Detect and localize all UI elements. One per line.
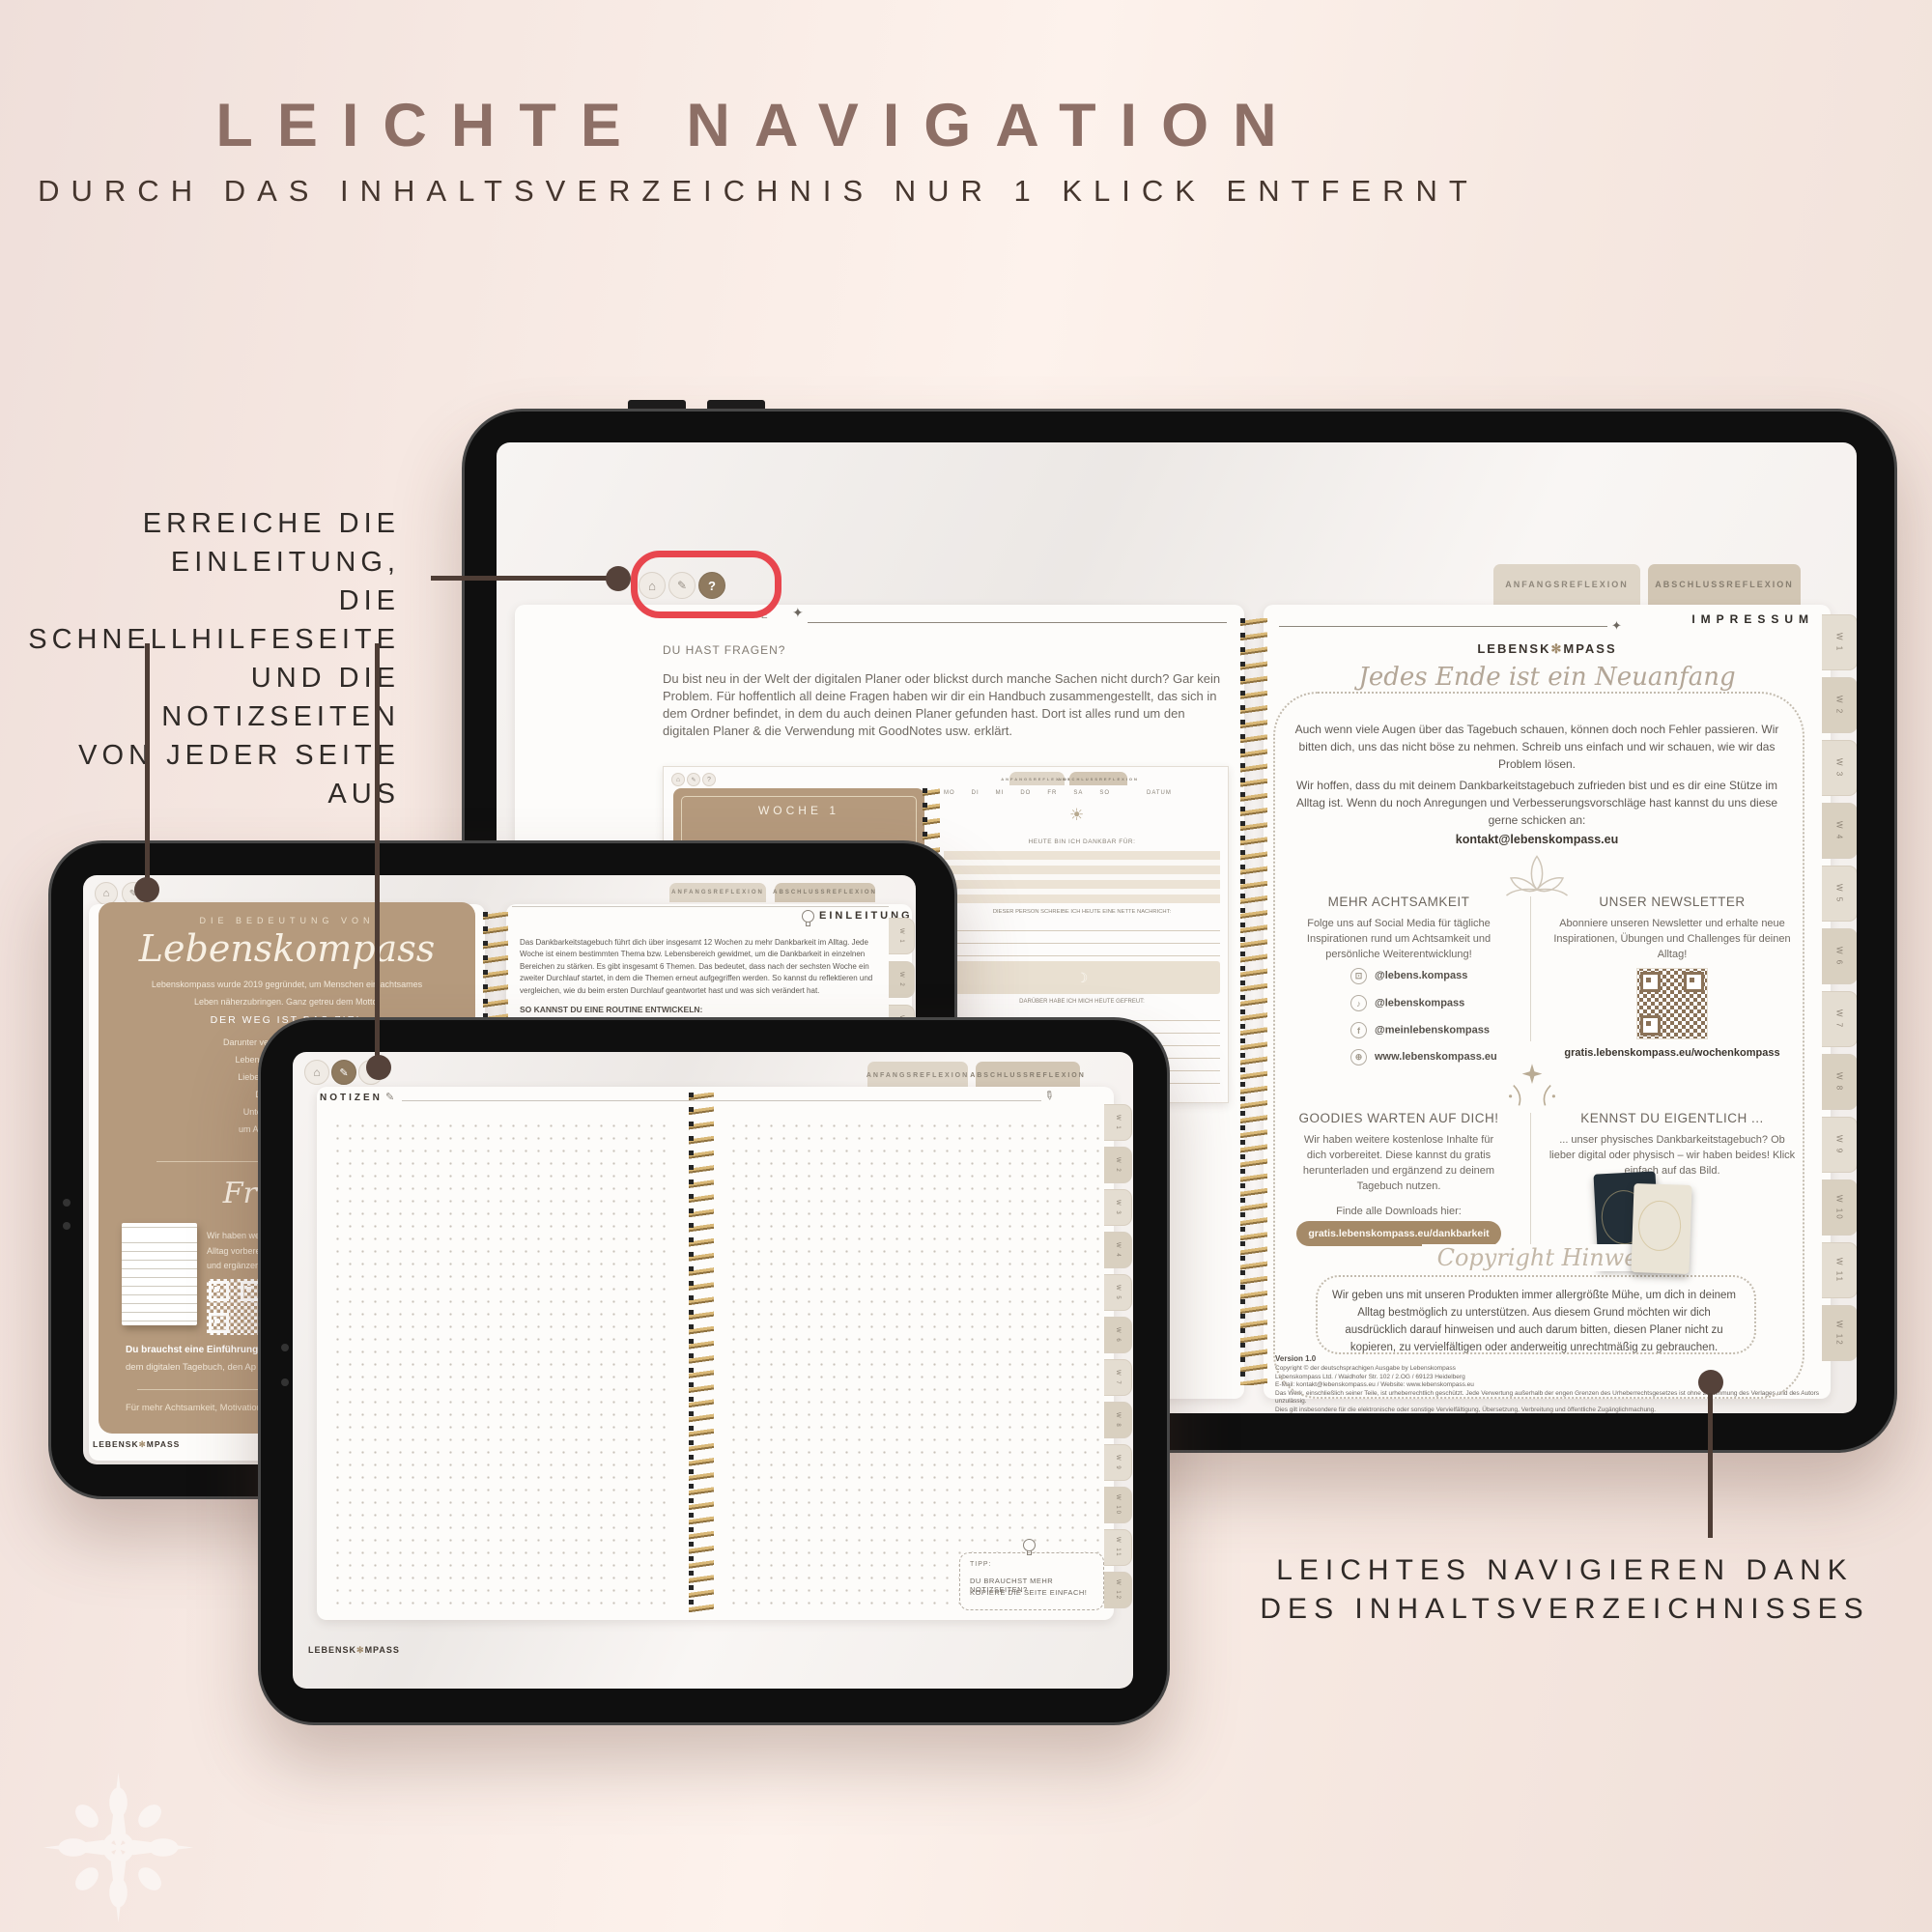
lebenskompass-logo: LEBENSK✻MPASS xyxy=(308,1645,400,1656)
tab-anfangsreflexion[interactable]: ANFANGSREFLEXION xyxy=(1493,564,1640,605)
freebies-qr-code[interactable] xyxy=(207,1279,263,1335)
week-tab-w2[interactable]: W 2 xyxy=(889,961,915,998)
pen-icon[interactable]: ✎ xyxy=(668,572,696,599)
marketing-graphic: LEICHTE NAVIGATION DURCH DAS INHALTSVERZ… xyxy=(0,0,1932,1932)
newsletter-heading: UNSER NEWSLETTER xyxy=(1553,895,1791,909)
week-tab-w3[interactable]: W 3 xyxy=(1822,740,1857,796)
social-link-website[interactable]: ⊕www.lebenskompass.eu xyxy=(1350,1049,1497,1065)
annotation-line: DES INHALTSVERZEICHNISSES xyxy=(1179,1590,1932,1629)
gratitude-rows[interactable] xyxy=(944,851,1220,903)
script-title: Lebenskompass xyxy=(99,927,475,970)
home-glyph: ⌂ xyxy=(648,579,656,593)
pen-icon: ✎ xyxy=(385,1091,394,1103)
tab-anfangsreflexion[interactable]: ANFANGSREFLEXION xyxy=(867,1062,968,1089)
copyright-script-wrap: Copyright Hinweis xyxy=(1264,1244,1831,1271)
freebies-lines: Wir haben we Alltag vorbere und ergänzen xyxy=(207,1229,261,1274)
tab-abschlussreflexion[interactable]: ABSCHLUSSREFLEXION xyxy=(1648,564,1801,605)
downloads-link-pill[interactable]: gratis.lebenskompass.eu/dankbarkeit xyxy=(1296,1221,1501,1246)
week-tab-w9[interactable]: W 9 xyxy=(1822,1117,1857,1173)
page-title: LEICHTE NAVIGATION xyxy=(0,91,1517,160)
pen-icon: ✎ xyxy=(687,773,700,786)
week-tab-w7[interactable]: W 7 xyxy=(1104,1359,1132,1396)
annotation-line: ERREICHE DIE EINLEITUNG, xyxy=(17,504,400,582)
week-tab-w1[interactable]: W 1 xyxy=(1104,1104,1132,1141)
instagram-icon: ⊡ xyxy=(1350,968,1367,984)
card-line: Leben näherzubringen. Ganz getreu dem Mo… xyxy=(99,997,475,1007)
social-link-facebook[interactable]: f@meinlebenskompass xyxy=(1350,1022,1497,1038)
moon-box: ☽ xyxy=(944,961,1220,994)
week-tab-w6[interactable]: W 6 xyxy=(1822,928,1857,984)
tab-abschlussreflexion[interactable]: ABSCHLUSSREFLEXION xyxy=(976,1062,1080,1089)
help-icon: ? xyxy=(702,773,716,786)
lebenskompass-logo: LEBENSK✻MPASS xyxy=(1264,641,1831,657)
sparkle-icon: ✦ xyxy=(1611,618,1622,634)
intro-bold-line: Du brauchst eine Einführung? xyxy=(126,1345,264,1355)
title-light: HILFE xyxy=(728,611,770,621)
tipp-box: TIPP: DU BRAUCHST MEHR NOTIZSEITEN? KOPI… xyxy=(959,1552,1104,1610)
week-tab-w3[interactable]: W 3 xyxy=(1104,1189,1132,1226)
bulb-icon xyxy=(802,910,814,927)
pen-icon[interactable]: ✎ xyxy=(331,1060,356,1085)
impressum-script-title: Jedes Ende ist ein Neuanfang xyxy=(1343,663,1750,692)
moon-icon: ☽ xyxy=(1076,970,1089,986)
week-tab-w7[interactable]: W 7 xyxy=(1822,991,1857,1047)
physical-text: ... unser physisches Dankbarkeitstagebuc… xyxy=(1548,1132,1797,1179)
sparkle-icon: ✦ xyxy=(792,605,804,621)
goodies-text: Wir haben weitere kostenlose Inhalte für… xyxy=(1296,1132,1501,1194)
week-tab-w2[interactable]: W 2 xyxy=(1822,677,1857,733)
lebenskompass-logo: LEBENSK✻MPASS xyxy=(93,1439,180,1450)
gefreut-label: DARÜBER HABE ICH MICH HEUTE GEFREUT: xyxy=(944,999,1220,1005)
newsletter-qr-code[interactable] xyxy=(1636,968,1708,1039)
annotation-line: VON JEDER SEITE AUS xyxy=(17,736,400,813)
tipp-label: TIPP: xyxy=(970,1561,992,1568)
week-tab-w6[interactable]: W 6 xyxy=(1104,1317,1132,1353)
spiral-binding xyxy=(689,1093,714,1614)
sun-icon: ☀ xyxy=(1069,806,1084,825)
week-tab-w12[interactable]: W 12 xyxy=(1822,1305,1857,1361)
week-tab-w8[interactable]: W 8 xyxy=(1104,1402,1132,1438)
card-line: Lebenskompass wurde 2019 gegründet, um M… xyxy=(99,980,475,989)
dotted-notes-area-left[interactable] xyxy=(331,1120,675,1605)
pen-glyph: ✎ xyxy=(677,579,687,592)
home-icon: ⌂ xyxy=(671,773,685,786)
logo-flower-icon: ✻ xyxy=(139,1439,147,1449)
tab-anfangsreflexion[interactable]: ANFANGSREFLEXION xyxy=(669,883,766,902)
week-tab-w12[interactable]: W 12 xyxy=(1104,1572,1132,1608)
person-label: DIESER PERSON SCHREIBE ICH HEUTE EINE NE… xyxy=(944,909,1220,915)
week-tab-w5[interactable]: W 5 xyxy=(1822,866,1857,922)
sparkle-burst-icon xyxy=(1501,1061,1563,1107)
help-icon[interactable]: ? xyxy=(358,1060,384,1085)
annotation-bottom-right: LEICHTES NAVIGIEREN DANK DES INHALTSVERZ… xyxy=(1179,1551,1932,1629)
week-tab-w10[interactable]: W 10 xyxy=(1104,1487,1132,1523)
logo-flower-icon: ✻ xyxy=(1550,641,1563,656)
physical-heading: KENNST DU EIGENTLICH ... xyxy=(1553,1111,1791,1125)
notizen-heading: NOTIZEN xyxy=(320,1093,383,1103)
lotus-icon xyxy=(1493,852,1580,898)
week-tab-w10[interactable]: W 10 xyxy=(1822,1179,1857,1236)
week-tab-w1[interactable]: W 1 xyxy=(1822,614,1857,670)
dotted-notes-area-right[interactable] xyxy=(727,1120,1104,1605)
intro-line2: dem digitalen Tagebuch, den Ap xyxy=(126,1362,256,1373)
home-icon[interactable]: ⌂ xyxy=(304,1060,329,1085)
week-tab-w8[interactable]: W 8 xyxy=(1822,1054,1857,1110)
freebie-paper-image xyxy=(122,1223,197,1325)
tiktok-icon: ♪ xyxy=(1350,995,1367,1011)
week-tab-w11[interactable]: W 11 xyxy=(1104,1529,1132,1566)
achtsamkeit-text: Folge uns auf Social Media für tägliche … xyxy=(1293,916,1505,962)
camera-dot xyxy=(281,1344,289,1351)
week-tab-w1[interactable]: W 1 xyxy=(889,918,915,954)
globe-icon: ⊕ xyxy=(1350,1049,1367,1065)
facebook-icon: f xyxy=(1350,1022,1367,1038)
annotation-line: DIE SCHNELLHILFESEITE xyxy=(17,582,400,659)
tablet-center-screen: ⌂ ✎ ? ANFANGSREFLEXION ABSCHLUSSREFLEXIO… xyxy=(293,1052,1133,1689)
camera-dot xyxy=(63,1199,71,1207)
contact-email[interactable]: kontakt@lebenskompass.eu xyxy=(1293,833,1781,846)
impressum-heading: IMPRESSUM xyxy=(1631,612,1814,626)
einleitung-paragraph: Das Dankbarkeitstagebuch führt dich über… xyxy=(520,937,887,997)
newsletter-text: Abonniere unseren Newsletter und erhalte… xyxy=(1549,916,1795,962)
camera-dot xyxy=(281,1378,289,1386)
copyright-text: Wir geben uns mit unseren Produkten imme… xyxy=(1329,1287,1739,1356)
help-glyph: ? xyxy=(708,579,716,593)
week-tab-w4[interactable]: W 4 xyxy=(1104,1232,1132,1268)
datum-label: DATUM xyxy=(1147,790,1172,796)
newsletter-link[interactable]: gratis.lebenskompass.eu/wochenkompass xyxy=(1544,1047,1801,1059)
physical-book-light[interactable] xyxy=(1631,1183,1691,1274)
tab-abschlussreflexion: ABSCHLUSSREFLEXION xyxy=(1069,772,1127,785)
lebenskompass-watermark-icon xyxy=(43,1773,193,1922)
annotation-left: ERREICHE DIE EINLEITUNG, DIE SCHNELLHILF… xyxy=(17,504,400,813)
home-icon[interactable]: ⌂ xyxy=(639,572,666,599)
help-icon[interactable]: ? xyxy=(698,572,725,599)
title-strong: SCHNELL xyxy=(663,611,728,621)
week-tab-w2[interactable]: W 2 xyxy=(1104,1147,1132,1183)
camera-dot xyxy=(63,1222,71,1230)
annotation-line: LEICHTES NAVIGIEREN DANK xyxy=(1179,1551,1932,1590)
social-links: ⊡@lebens.kompass ♪@lebenskompass f@meinl… xyxy=(1350,968,1497,1065)
page-subtitle: DURCH DAS INHALTSVERZEICHNIS NUR 1 KLICK… xyxy=(0,174,1517,209)
tipp-line: KOPIERE DIE SEITE EINFACH! xyxy=(970,1588,1087,1597)
question-heading: DU HAST FRAGEN? xyxy=(663,643,785,657)
downloads-label: Finde alle Downloads hier: xyxy=(1296,1204,1501,1219)
logo-flower-icon: ✻ xyxy=(356,1645,365,1655)
achtsamkeit-heading: MEHR ACHTSAMKEIT xyxy=(1283,895,1515,909)
goodies-heading: GOODIES WARTEN AUF DICH! xyxy=(1283,1111,1515,1125)
routine-heading: SO KANNST DU EINE ROUTINE ENTWICKELN: xyxy=(520,1005,702,1014)
tablet-center: ⌂ ✎ ? ANFANGSREFLEXION ABSCHLUSSREFLEXIO… xyxy=(258,1017,1170,1725)
week-tab-w9[interactable]: W 9 xyxy=(1104,1444,1132,1481)
card-footer: Für mehr Achtsamkeit, Motivation xyxy=(126,1403,262,1413)
annotation-line: UND DIE NOTIZSEITEN xyxy=(17,659,400,736)
dankbar-label: HEUTE BIN ICH DANKBAR FÜR: xyxy=(944,838,1220,845)
week-tab-w5[interactable]: W 5 xyxy=(1104,1274,1132,1311)
impressum-para1: Auch wenn viele Augen über das Tagebuch … xyxy=(1293,721,1781,773)
script-title-wrap: Jedes Ende ist ein Neuanfang xyxy=(1264,663,1831,692)
bulb-icon xyxy=(1023,1539,1036,1556)
social-link-tiktok[interactable]: ♪@lebenskompass xyxy=(1350,995,1497,1011)
week-tab-w4[interactable]: W 4 xyxy=(1822,803,1857,859)
tab-abschlussreflexion[interactable]: ABSCHLUSSREFLEXION xyxy=(775,883,875,902)
woche-label: WOCHE 1 xyxy=(673,804,924,817)
tab-anfangsreflexion: ANFANGSREFLEXION xyxy=(1009,772,1065,785)
schnellhilfe-title: SCHNELLHILFE xyxy=(663,611,771,621)
message-rows[interactable] xyxy=(944,919,1220,957)
schnellhilfe-paragraph: Du bist neu in der Welt der digitalen Pl… xyxy=(663,670,1231,740)
eyebrow: DIE BEDEUTUNG VON xyxy=(99,916,475,925)
social-link-instagram[interactable]: ⊡@lebens.kompass xyxy=(1350,968,1497,984)
impressum-para2: Wir hoffen, dass du mit deinem Dankbarke… xyxy=(1293,777,1781,829)
